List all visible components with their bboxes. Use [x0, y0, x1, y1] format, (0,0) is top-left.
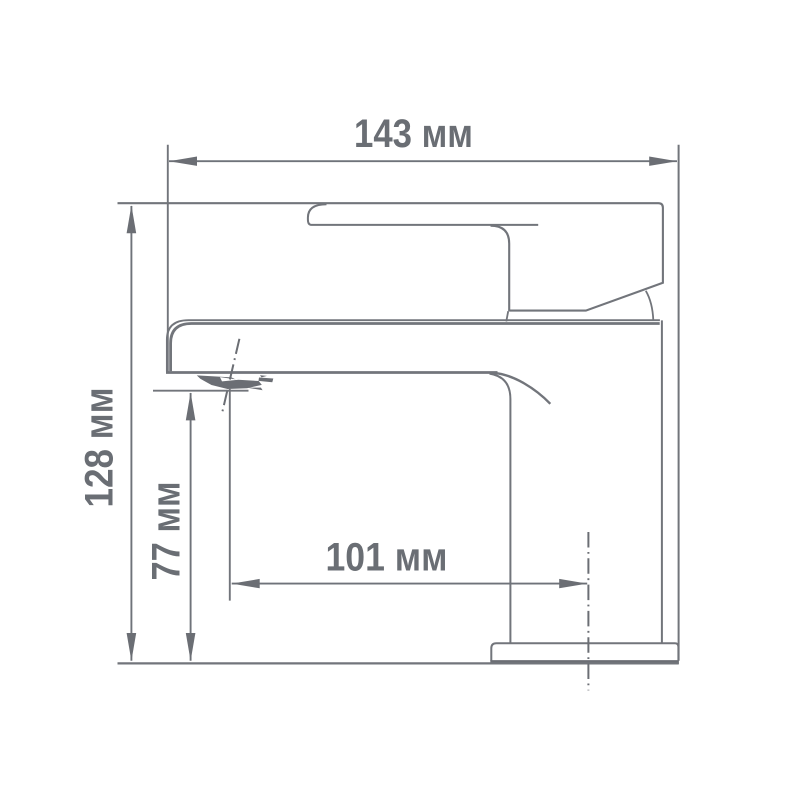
svg-text:143 мм: 143 мм: [354, 112, 473, 156]
svg-text:77 мм: 77 мм: [145, 482, 189, 581]
svg-text:128 мм: 128 мм: [78, 388, 122, 508]
svg-text:101 мм: 101 мм: [326, 535, 448, 579]
